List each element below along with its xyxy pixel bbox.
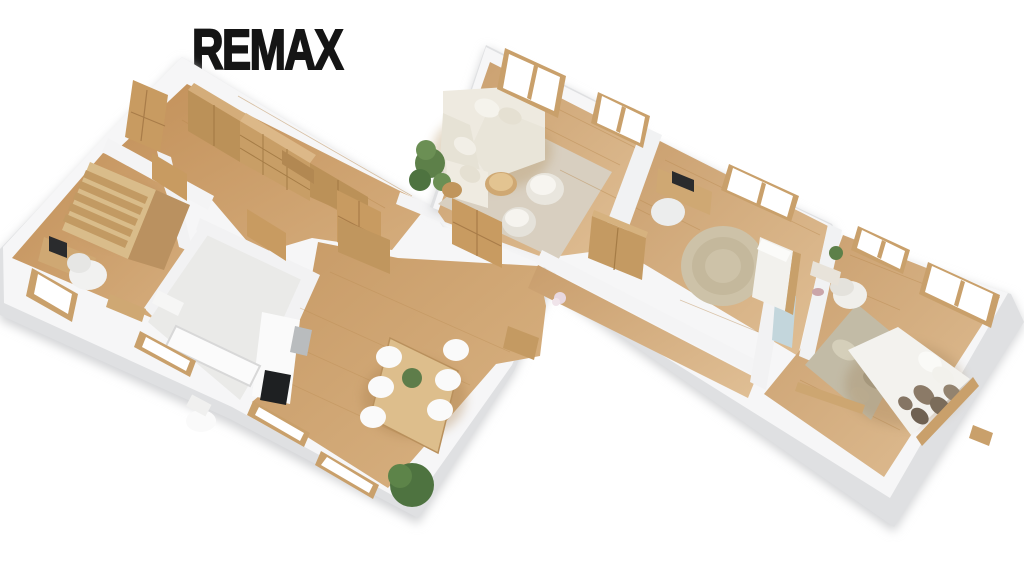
svg-text:REMAX: REMAX bbox=[192, 18, 344, 82]
